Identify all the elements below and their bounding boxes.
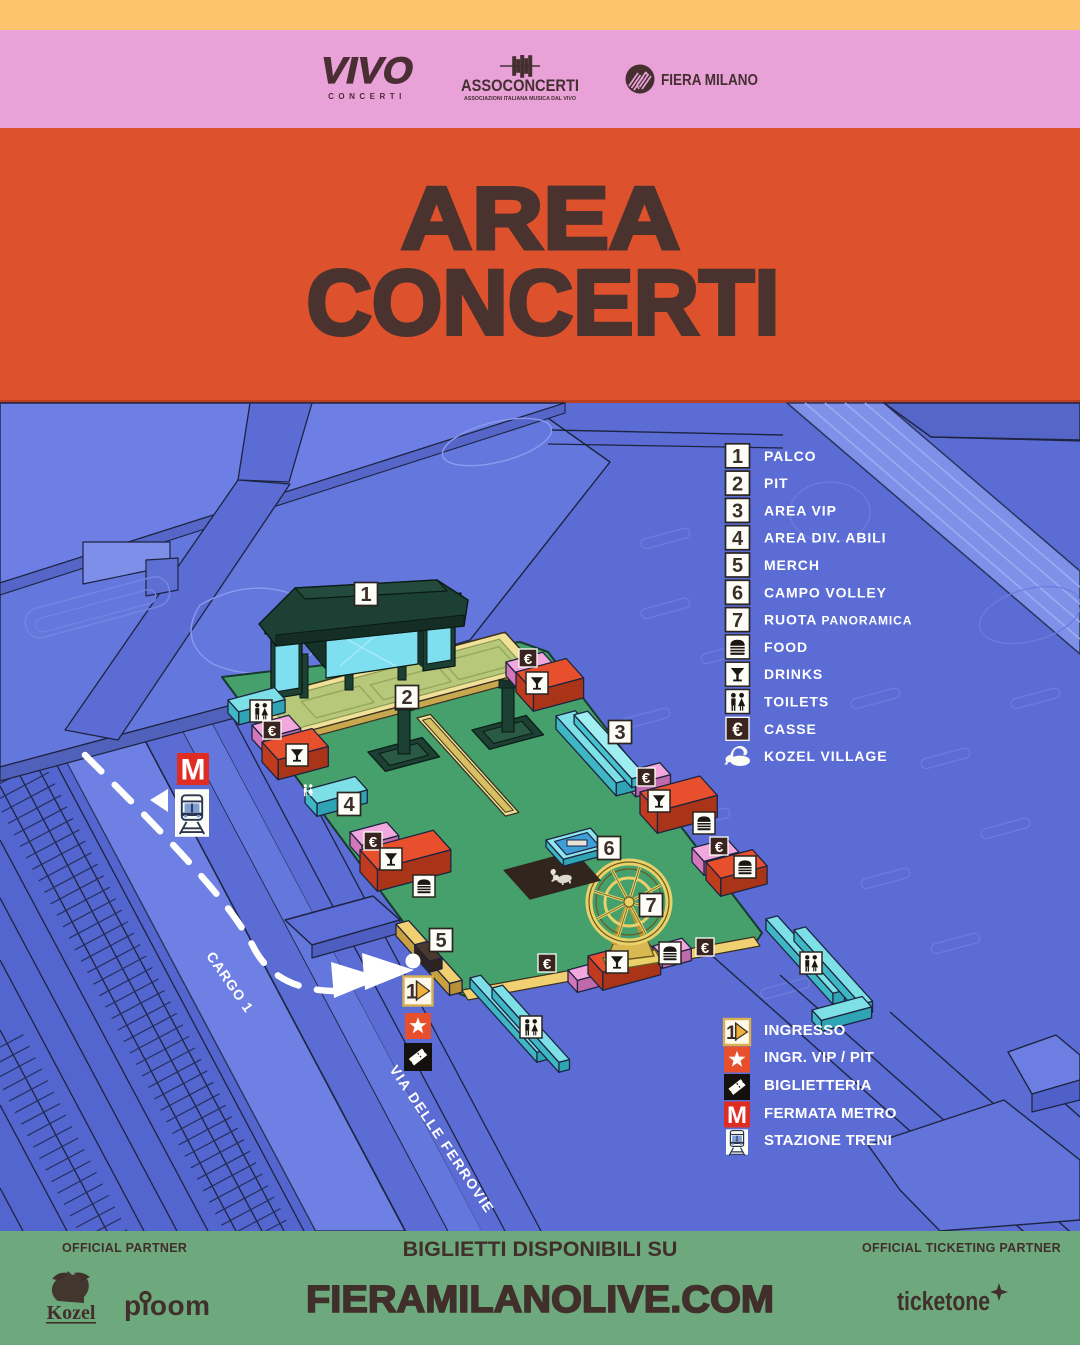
svg-text:FIERAMILANOLIVE.COM: FIERAMILANOLIVE.COM bbox=[306, 1279, 774, 1321]
svg-text:PALCO: PALCO bbox=[764, 448, 816, 464]
svg-text:ticketone: ticketone bbox=[897, 1288, 990, 1316]
svg-text:3: 3 bbox=[614, 722, 625, 744]
svg-text:€: € bbox=[701, 940, 710, 957]
svg-text:7: 7 bbox=[645, 895, 656, 917]
svg-text:CONCERTI: CONCERTI bbox=[307, 252, 780, 354]
svg-text:FIERA MILANO: FIERA MILANO bbox=[661, 72, 758, 89]
svg-text:6: 6 bbox=[603, 838, 614, 860]
svg-text:BIGLIETTERIA: BIGLIETTERIA bbox=[764, 1077, 872, 1094]
svg-text:€: € bbox=[715, 839, 724, 856]
svg-text:M: M bbox=[181, 754, 206, 787]
svg-text:STAZIONE TRENI: STAZIONE TRENI bbox=[764, 1132, 892, 1149]
svg-text:CAMPO VOLLEY: CAMPO VOLLEY bbox=[764, 584, 887, 600]
svg-text:6: 6 bbox=[732, 583, 743, 605]
svg-text:CONCERTI: CONCERTI bbox=[328, 92, 406, 101]
svg-text:Kozel: Kozel bbox=[47, 1302, 96, 1324]
svg-text:5: 5 bbox=[435, 930, 446, 952]
svg-text:RUOTA PANORAMICA: RUOTA PANORAMICA bbox=[764, 612, 912, 628]
svg-text:€: € bbox=[369, 834, 378, 851]
svg-text:€: € bbox=[524, 651, 533, 668]
svg-text:4: 4 bbox=[732, 528, 744, 550]
svg-text:FOOD: FOOD bbox=[764, 639, 808, 655]
svg-text:ploom: ploom bbox=[124, 1290, 211, 1321]
svg-text:1: 1 bbox=[732, 446, 743, 468]
svg-text:4: 4 bbox=[343, 794, 355, 816]
svg-text:€: € bbox=[543, 956, 552, 973]
svg-text:€: € bbox=[642, 770, 651, 787]
svg-text:3: 3 bbox=[732, 501, 743, 523]
svg-text:7: 7 bbox=[732, 610, 743, 632]
svg-text:ASSOCONCERTI: ASSOCONCERTI bbox=[461, 77, 579, 95]
svg-text:PIT: PIT bbox=[764, 475, 788, 491]
svg-text:VIVO: VIVO bbox=[317, 52, 418, 91]
svg-text:AREA VIP: AREA VIP bbox=[764, 502, 837, 518]
svg-text:MERCH: MERCH bbox=[764, 557, 820, 573]
svg-text:DRINKS: DRINKS bbox=[764, 666, 823, 682]
svg-text:AREA DIV. ABILI: AREA DIV. ABILI bbox=[764, 530, 886, 546]
svg-text:1: 1 bbox=[360, 584, 371, 606]
svg-text:INGR. VIP / PIT: INGR. VIP / PIT bbox=[764, 1049, 874, 1066]
svg-text:CASSE: CASSE bbox=[764, 721, 817, 737]
svg-text:5: 5 bbox=[732, 555, 743, 577]
svg-text:FERMATA METRO: FERMATA METRO bbox=[764, 1105, 897, 1122]
svg-text:€: € bbox=[268, 723, 277, 740]
svg-text:ASSOCIAZIONI ITALIANA MUSICA D: ASSOCIAZIONI ITALIANA MUSICA DAL VIVO bbox=[464, 96, 577, 102]
svg-text:2: 2 bbox=[401, 687, 412, 709]
svg-text:TOILETS: TOILETS bbox=[764, 694, 829, 710]
svg-text:M: M bbox=[727, 1102, 747, 1129]
svg-text:INGRESSO: INGRESSO bbox=[764, 1022, 846, 1039]
svg-text:KOZEL VILLAGE: KOZEL VILLAGE bbox=[764, 748, 887, 764]
svg-text:2: 2 bbox=[732, 473, 743, 495]
svg-text:€: € bbox=[732, 720, 743, 741]
